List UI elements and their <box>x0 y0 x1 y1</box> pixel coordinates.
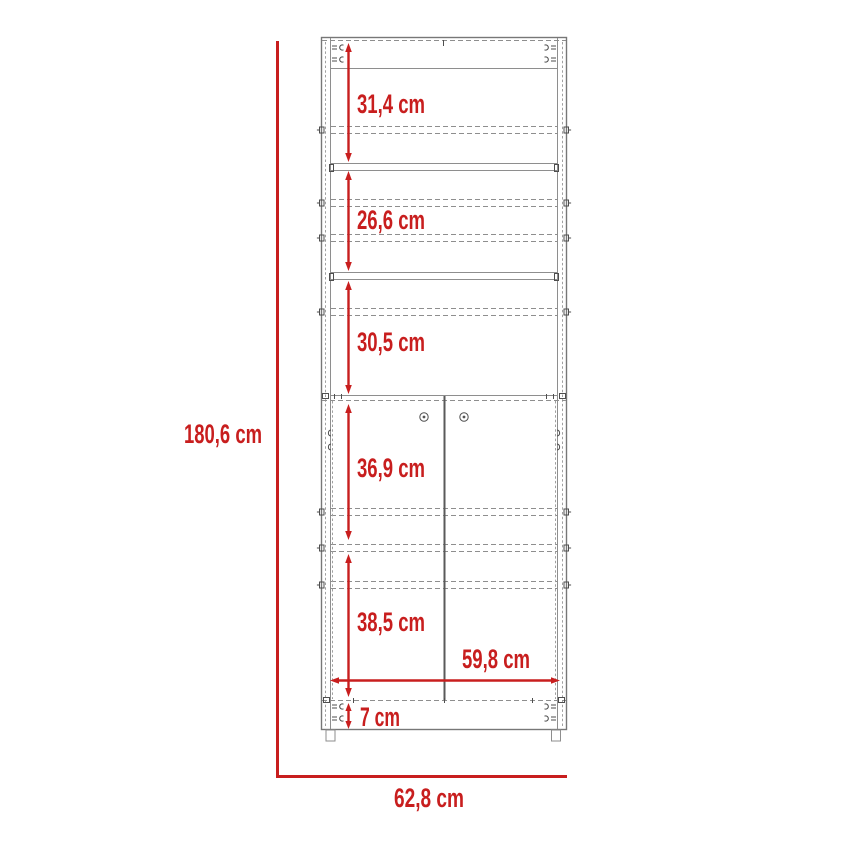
overall-width-label: 62,8 cm <box>394 783 464 813</box>
left-foot <box>326 730 335 741</box>
cabinet-dimension-diagram: 31,4 cm 26,6 cm 30,5 cm 36,9 cm 38,5 cm … <box>0 0 850 850</box>
lower-door-space-label: 38,5 cm <box>357 607 425 637</box>
upper-door-space-label: 36,9 cm <box>357 453 425 483</box>
dimension-labels: 31,4 cm 26,6 cm 30,5 cm 36,9 cm 38,5 cm … <box>184 89 530 813</box>
second-shelf-space-label: 26,6 cm <box>357 205 425 235</box>
left-door-knob <box>420 413 428 421</box>
dimension-diagram-canvas: 31,4 cm 26,6 cm 30,5 cm 36,9 cm 38,5 cm … <box>0 0 850 850</box>
right-foot <box>552 730 561 741</box>
overall-height-label: 180,6 cm <box>184 419 262 449</box>
right-door-knob <box>460 413 468 421</box>
third-shelf-space-label: 30,5 cm <box>357 327 425 357</box>
door-width-label: 59,8 cm <box>462 644 530 674</box>
plinth-height-label: 7 cm <box>360 702 400 732</box>
top-shelf-space-label: 31,4 cm <box>357 89 425 119</box>
